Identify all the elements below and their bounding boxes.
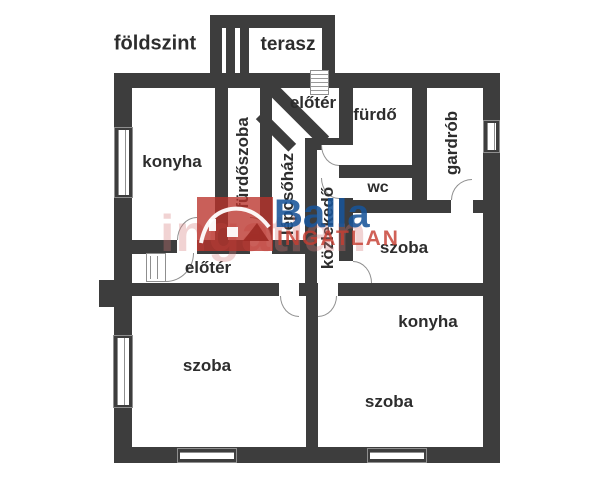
wall-furdo-gardrob [412, 88, 427, 200]
terrace-pillar-1 [226, 28, 235, 73]
terrace-pillar-2 [240, 28, 249, 73]
floor-plan: földszint terasz előtér konyha fürdőszob… [0, 0, 616, 480]
wall-terrace-left [210, 15, 222, 73]
house-icon [197, 197, 273, 251]
door-arc-furdo [321, 145, 339, 166]
entrance-steps-icon [310, 70, 329, 95]
wall-bottom-center [306, 296, 318, 447]
door-arc-gardrob [451, 179, 472, 200]
wall-left-pilaster [99, 280, 115, 307]
wall-gardrob-bottom [473, 200, 500, 213]
window-konyha-left [114, 127, 133, 198]
window-gardrob-right [483, 120, 500, 153]
wall-furdo-wc [339, 165, 412, 178]
wall-mid-band-c [338, 283, 500, 296]
door-gap-furdo [339, 145, 353, 165]
room-label-konyha-bottom: konyha [398, 312, 458, 332]
wall-terrace-top [210, 15, 335, 28]
room-label-terasz: terasz [261, 34, 316, 56]
room-label-szoba-bl: szoba [183, 356, 231, 376]
floor-title: földszint [114, 33, 196, 56]
room-label-furdoszoba: fürdőszoba [233, 117, 253, 209]
wall-mid-band-a [132, 283, 279, 296]
door-arc-szoba-br [318, 296, 337, 317]
wall-terrace-right [322, 15, 335, 73]
door-arc-szoba-middle [353, 261, 372, 283]
room-label-furdo: fürdő [353, 105, 396, 125]
room-label-szoba-br: szoba [365, 392, 413, 412]
room-label-gardrob: gardrób [442, 111, 462, 175]
door-gap-szoba-middle [339, 261, 353, 283]
room-label-konyha-top: konyha [142, 152, 202, 172]
door-arc-szoba-bl [280, 296, 299, 317]
watermark-house-logo-icon [197, 197, 273, 251]
window-szoba-bottom-right [367, 448, 427, 463]
window-szoba-bottom-left [177, 448, 237, 463]
door-gap-szoba-br [318, 283, 338, 296]
room-label-eloter-top: előtér [290, 93, 336, 113]
wall-bottom [114, 447, 500, 463]
window-szoba-left [113, 335, 133, 408]
door-gap-szoba-bl [279, 283, 299, 296]
watermark-subtitle-text: INGATLAN [277, 227, 400, 251]
wall-mid-band-b [299, 283, 318, 296]
room-label-wc: wc [367, 179, 388, 197]
wall-top-right [329, 73, 500, 88]
wall-top-left [114, 73, 310, 88]
wall-kozlekedo-right-a [339, 88, 353, 145]
